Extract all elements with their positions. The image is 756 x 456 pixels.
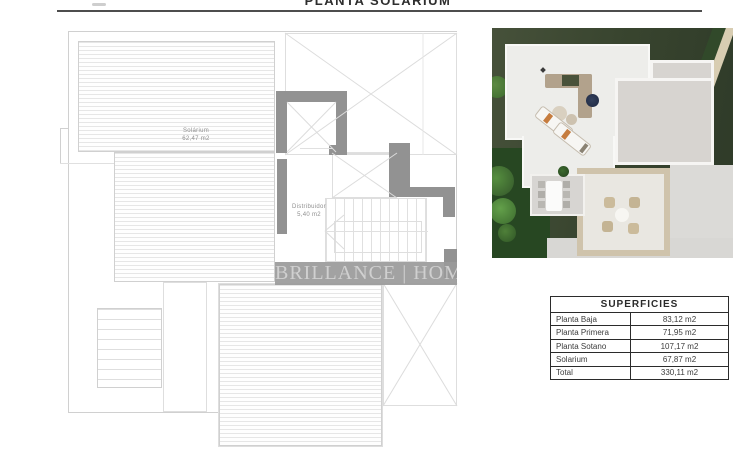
dining-chair [563,191,570,198]
plan-sheet: PLANTA SOLARIUM [0,0,756,456]
dining-chair [538,181,545,188]
row-label: Planta Baja [551,313,631,325]
row-label: Planta Sotano [551,340,631,352]
dining-chair [538,201,545,208]
solarium-deck-bottom [219,284,382,446]
stair-flight [334,221,422,253]
terrace-outline-left [163,282,207,412]
plan-boundary-left [68,31,69,413]
sofa-cushions [562,75,579,86]
pouf [566,114,577,125]
row-value: 107,17 m2 [631,340,728,352]
dining-chair [563,181,570,188]
table-row: Total 330,11 m2 [551,367,728,379]
row-value: 83,12 m2 [631,313,728,325]
table-row: Solarium 67,87 m2 [551,353,728,366]
patio-chair [602,221,613,232]
patio-chair [628,223,639,234]
stairs-southwest [97,308,162,388]
wall-l-horizontal [398,187,443,197]
table-header: SUPERFICIES [551,297,728,313]
patio-chair [629,197,640,208]
dining-chair [538,191,545,198]
patio-chair [604,197,615,208]
plan-boundary-top [68,31,457,32]
towel [561,129,571,140]
room-label-distribuidor: Distribuidor 5,40 m2 [269,203,349,219]
patio-table [615,208,629,222]
headrest [579,143,588,153]
dining-chair [563,201,570,208]
room-name: Solárium [156,127,236,135]
corridor-wall-left [277,159,287,234]
room-area: 5,40 m2 [269,211,349,219]
dining-nook [530,174,585,216]
potted-plant [558,166,569,177]
aerial-photo [492,28,733,258]
row-label: Total [551,367,631,379]
stone-terrace [577,168,670,256]
opening-line [347,152,389,153]
tree [498,224,516,242]
core-wall-right-foot [329,145,347,155]
room-area: 62,47 m2 [156,135,236,143]
dining-table [546,181,562,211]
row-value: 67,87 m2 [631,353,728,365]
void-outline-center [332,153,397,198]
row-value: 71,95 m2 [631,326,728,338]
room-label-solarium: Solárium 62,47 m2 [156,127,236,143]
table-row: Planta Sotano 107,17 m2 [551,340,728,353]
superficies-table: SUPERFICIES Planta Baja 83,12 m2 Planta … [550,296,729,380]
plan-boundary-notch [60,128,69,163]
table-row: Planta Primera 71,95 m2 [551,326,728,339]
plan-line [60,163,114,164]
row-label: Planta Primera [551,326,631,338]
wall-l-end [443,187,455,217]
watermark: BRILLANCE | HOMES [275,262,457,285]
solarium-deck-lower [114,152,275,282]
row-label: Solarium [551,353,631,365]
plan-boundary-bottom [68,412,219,413]
roof-outline-lower-right [383,283,457,406]
core-wall-left [276,91,287,153]
core-door-line [300,148,333,149]
room-name: Distribuidor [269,203,349,211]
lounge-chair-navy [586,94,599,107]
core-wall-right [336,91,347,145]
tiled-roof-main [615,78,714,165]
table-row: Planta Baja 83,12 m2 [551,313,728,326]
floor-plan: Solárium 62,47 m2 Distribuidor 5,40 m2 B… [0,0,480,456]
row-value: 330,11 m2 [631,367,728,379]
towel [543,113,553,124]
